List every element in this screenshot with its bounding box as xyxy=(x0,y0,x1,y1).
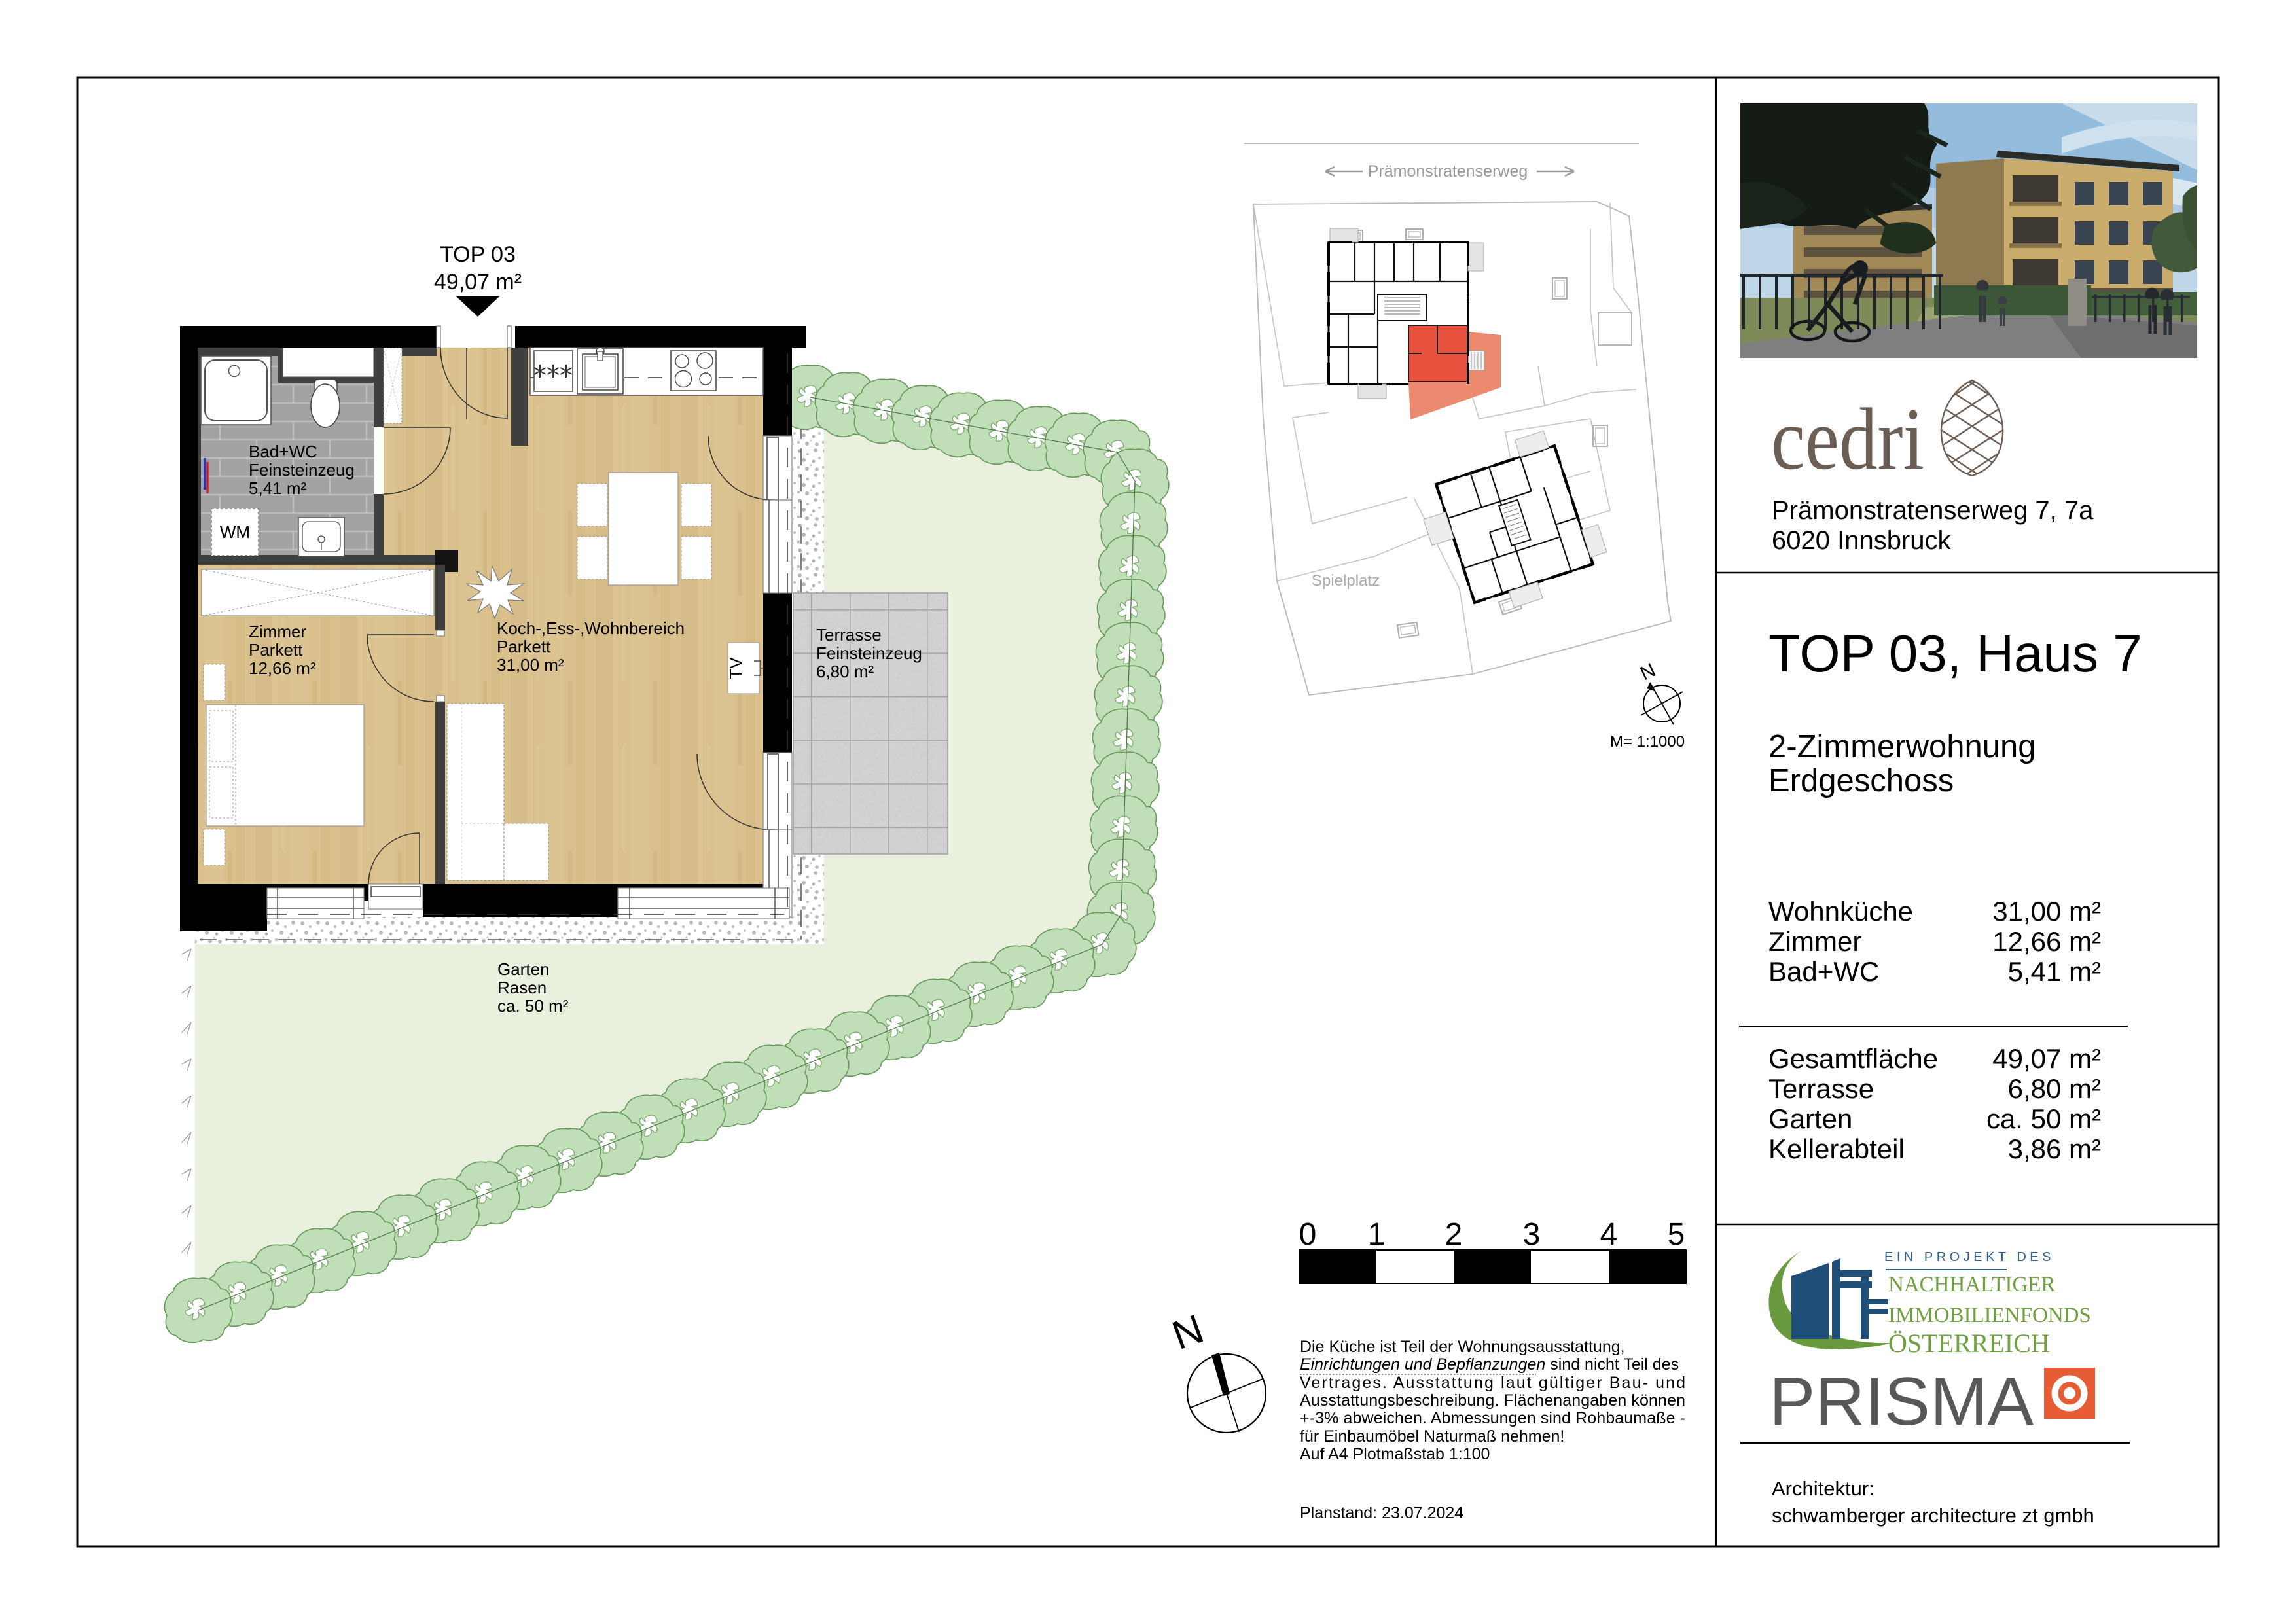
svg-text:49,07 m²: 49,07 m² xyxy=(434,270,522,294)
svg-text:+-3% abweichen. Abmessungen: +-3% abweichen. Abmessungen sind Rohbaum… xyxy=(1300,1409,1685,1427)
svg-text:Garten: Garten xyxy=(1768,1103,1852,1134)
svg-text:Terrasse: Terrasse xyxy=(1768,1073,1874,1104)
svg-text:Kellerabteil: Kellerabteil xyxy=(1768,1133,1905,1164)
svg-text:6,80 m²: 6,80 m² xyxy=(816,662,874,681)
svg-text:M= 1:1000: M= 1:1000 xyxy=(1610,733,1685,751)
svg-text:Parkett: Parkett xyxy=(497,637,551,656)
svg-text:Auf A4 Plotmaßstab 1:100: Auf A4 Plotmaßstab 1:100 xyxy=(1300,1445,1490,1463)
svg-text:Gesamtfläche: Gesamtfläche xyxy=(1768,1043,1938,1074)
svg-text:schwamberger architecture zt g: schwamberger architecture zt gmbh xyxy=(1772,1504,2094,1527)
svg-text:6020 Innsbruck: 6020 Innsbruck xyxy=(1772,526,1952,555)
svg-text:Terrasse: Terrasse xyxy=(816,625,882,645)
svg-text:Ausstattungsbeschreibung. Flä: Ausstattungsbeschreibung. Flächenangaben… xyxy=(1300,1391,1685,1410)
svg-text:Planstand: 23.07.2024: Planstand: 23.07.2024 xyxy=(1300,1504,1463,1522)
svg-text:Die Küche ist Teil der Wohnung: Die Küche ist Teil der Wohnungsausstattu… xyxy=(1300,1338,1625,1356)
svg-text:2-Zimmerwohnung: 2-Zimmerwohnung xyxy=(1768,729,2036,764)
svg-text:Zimmer: Zimmer xyxy=(1768,926,1861,957)
svg-text:Prämonstratenserweg 7, 7a: Prämonstratenserweg 7, 7a xyxy=(1772,496,2094,525)
svg-text:Architektur:: Architektur: xyxy=(1772,1477,1874,1500)
svg-text:49,07 m²: 49,07 m² xyxy=(1992,1043,2101,1074)
svg-text:3,86 m²: 3,86 m² xyxy=(2008,1133,2101,1164)
svg-text:ca. 50 m²: ca. 50 m² xyxy=(497,996,569,1016)
svg-text:6,80 m²: 6,80 m² xyxy=(2008,1073,2101,1104)
svg-text:Zimmer: Zimmer xyxy=(249,622,306,641)
svg-text:TV: TV xyxy=(726,657,745,679)
svg-text:Bad+WC: Bad+WC xyxy=(249,442,317,461)
svg-text:Feinsteinzeug: Feinsteinzeug xyxy=(816,643,922,663)
svg-text:Parkett: Parkett xyxy=(249,640,303,660)
svg-text:TOP 03, Haus 7: TOP 03, Haus 7 xyxy=(1768,624,2142,683)
svg-text:12,66 m²: 12,66 m² xyxy=(1992,926,2101,957)
svg-text:cedri: cedri xyxy=(1771,391,1924,488)
svg-text:Einrichtungen und Bepflanzunge: Einrichtungen und Bepflanzungen sind nic… xyxy=(1300,1355,1679,1374)
svg-text:Bad+WC: Bad+WC xyxy=(1768,956,1879,987)
svg-text:5,41 m²: 5,41 m² xyxy=(2008,956,2101,987)
svg-text:12,66 m²: 12,66 m² xyxy=(249,658,316,678)
svg-text:Wohnküche: Wohnküche xyxy=(1768,896,1913,927)
svg-text:ÖSTERREICH: ÖSTERREICH xyxy=(1888,1329,2050,1358)
svg-text:Erdgeschoss: Erdgeschoss xyxy=(1768,763,1954,798)
svg-text:1: 1 xyxy=(1368,1217,1386,1252)
svg-text:Vertrages. Ausstattung laut: Vertrages. Ausstattung laut gültiger Bau… xyxy=(1300,1374,1685,1392)
svg-text:Koch-,Ess-,Wohnbereich: Koch-,Ess-,Wohnbereich xyxy=(497,618,685,638)
svg-text:TOP 03: TOP 03 xyxy=(440,242,516,267)
svg-text:Garten: Garten xyxy=(497,959,550,979)
svg-text:31,00 m²: 31,00 m² xyxy=(1992,896,2101,927)
svg-text:IMMOBILIENFONDS: IMMOBILIENFONDS xyxy=(1888,1304,2091,1327)
svg-text:EIN PROJEKT DES: EIN PROJEKT DES xyxy=(1884,1250,2054,1264)
svg-text:5,41 m²: 5,41 m² xyxy=(249,478,306,498)
svg-text:WM: WM xyxy=(220,522,250,542)
svg-text:PRISMA: PRISMA xyxy=(1769,1364,2034,1440)
svg-text:ca. 50 m²: ca. 50 m² xyxy=(1986,1103,2101,1134)
svg-text:2: 2 xyxy=(1445,1217,1463,1252)
svg-text:31,00 m²: 31,00 m² xyxy=(497,655,564,675)
svg-text:0: 0 xyxy=(1299,1217,1317,1252)
svg-text:Spielplatz: Spielplatz xyxy=(1312,572,1380,590)
svg-text:NACHHALTIGER: NACHHALTIGER xyxy=(1888,1273,2055,1296)
svg-text:Prämonstratenserweg: Prämonstratenserweg xyxy=(1368,162,1528,181)
svg-text:für Einbaumöbel Naturmaß nehme: für Einbaumöbel Naturmaß nehmen! xyxy=(1300,1427,1564,1446)
svg-text:5: 5 xyxy=(1668,1217,1685,1252)
svg-text:Feinsteinzeug: Feinsteinzeug xyxy=(249,460,355,480)
svg-text:3: 3 xyxy=(1523,1217,1541,1252)
svg-text:Rasen: Rasen xyxy=(497,978,547,997)
svg-text:4: 4 xyxy=(1600,1217,1618,1252)
